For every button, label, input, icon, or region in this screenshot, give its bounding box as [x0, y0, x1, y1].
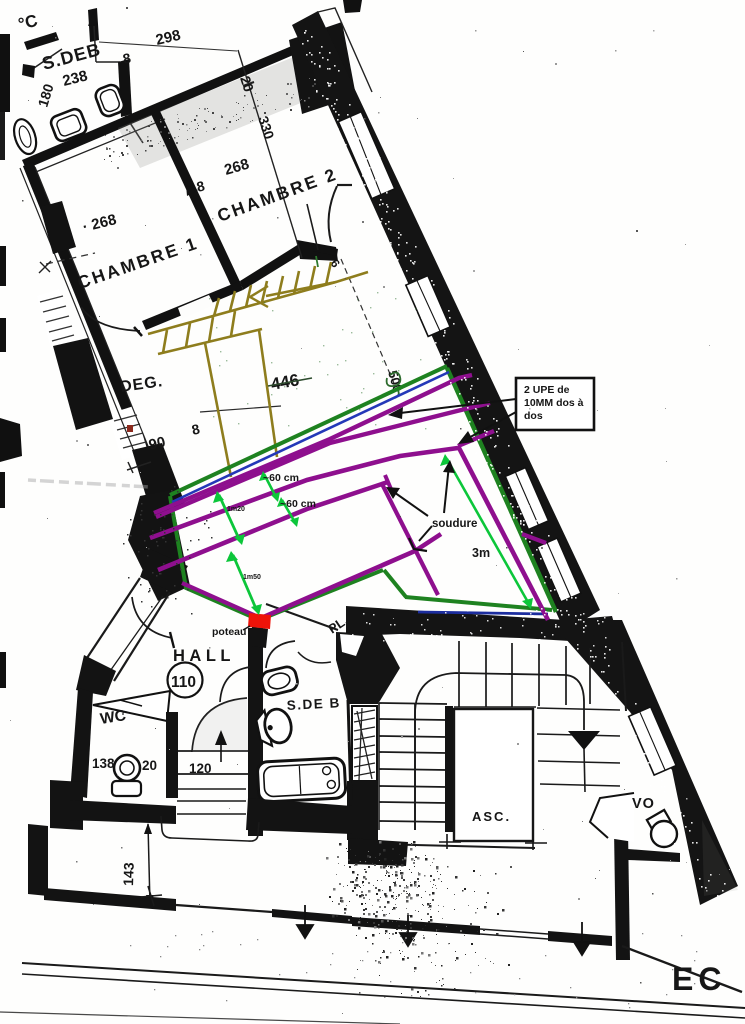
- svg-text:138: 138: [92, 756, 115, 771]
- svg-text:110: 110: [171, 674, 196, 691]
- svg-text:S.DE B: S.DE B: [286, 695, 341, 713]
- svg-text:ASC.: ASC.: [472, 809, 511, 824]
- svg-text:~60 cm: ~60 cm: [280, 498, 316, 510]
- svg-text:143: 143: [120, 862, 137, 886]
- svg-text:1m50: 1m50: [243, 574, 261, 581]
- svg-text:2 UPE de: 2 UPE de: [524, 384, 570, 396]
- svg-text:poteau: poteau: [212, 626, 246, 638]
- svg-text:EC: EC: [672, 961, 726, 997]
- svg-text:3m: 3m: [472, 546, 490, 560]
- svg-text:~60 cm: ~60 cm: [263, 472, 299, 484]
- svg-text:dos: dos: [524, 410, 543, 422]
- svg-text:soudure: soudure: [432, 518, 477, 530]
- svg-text:10MM dos à: 10MM dos à: [524, 397, 584, 409]
- svg-text:VO: VO: [632, 796, 655, 812]
- svg-text:1m20: 1m20: [227, 506, 245, 513]
- svg-text:20: 20: [142, 758, 157, 773]
